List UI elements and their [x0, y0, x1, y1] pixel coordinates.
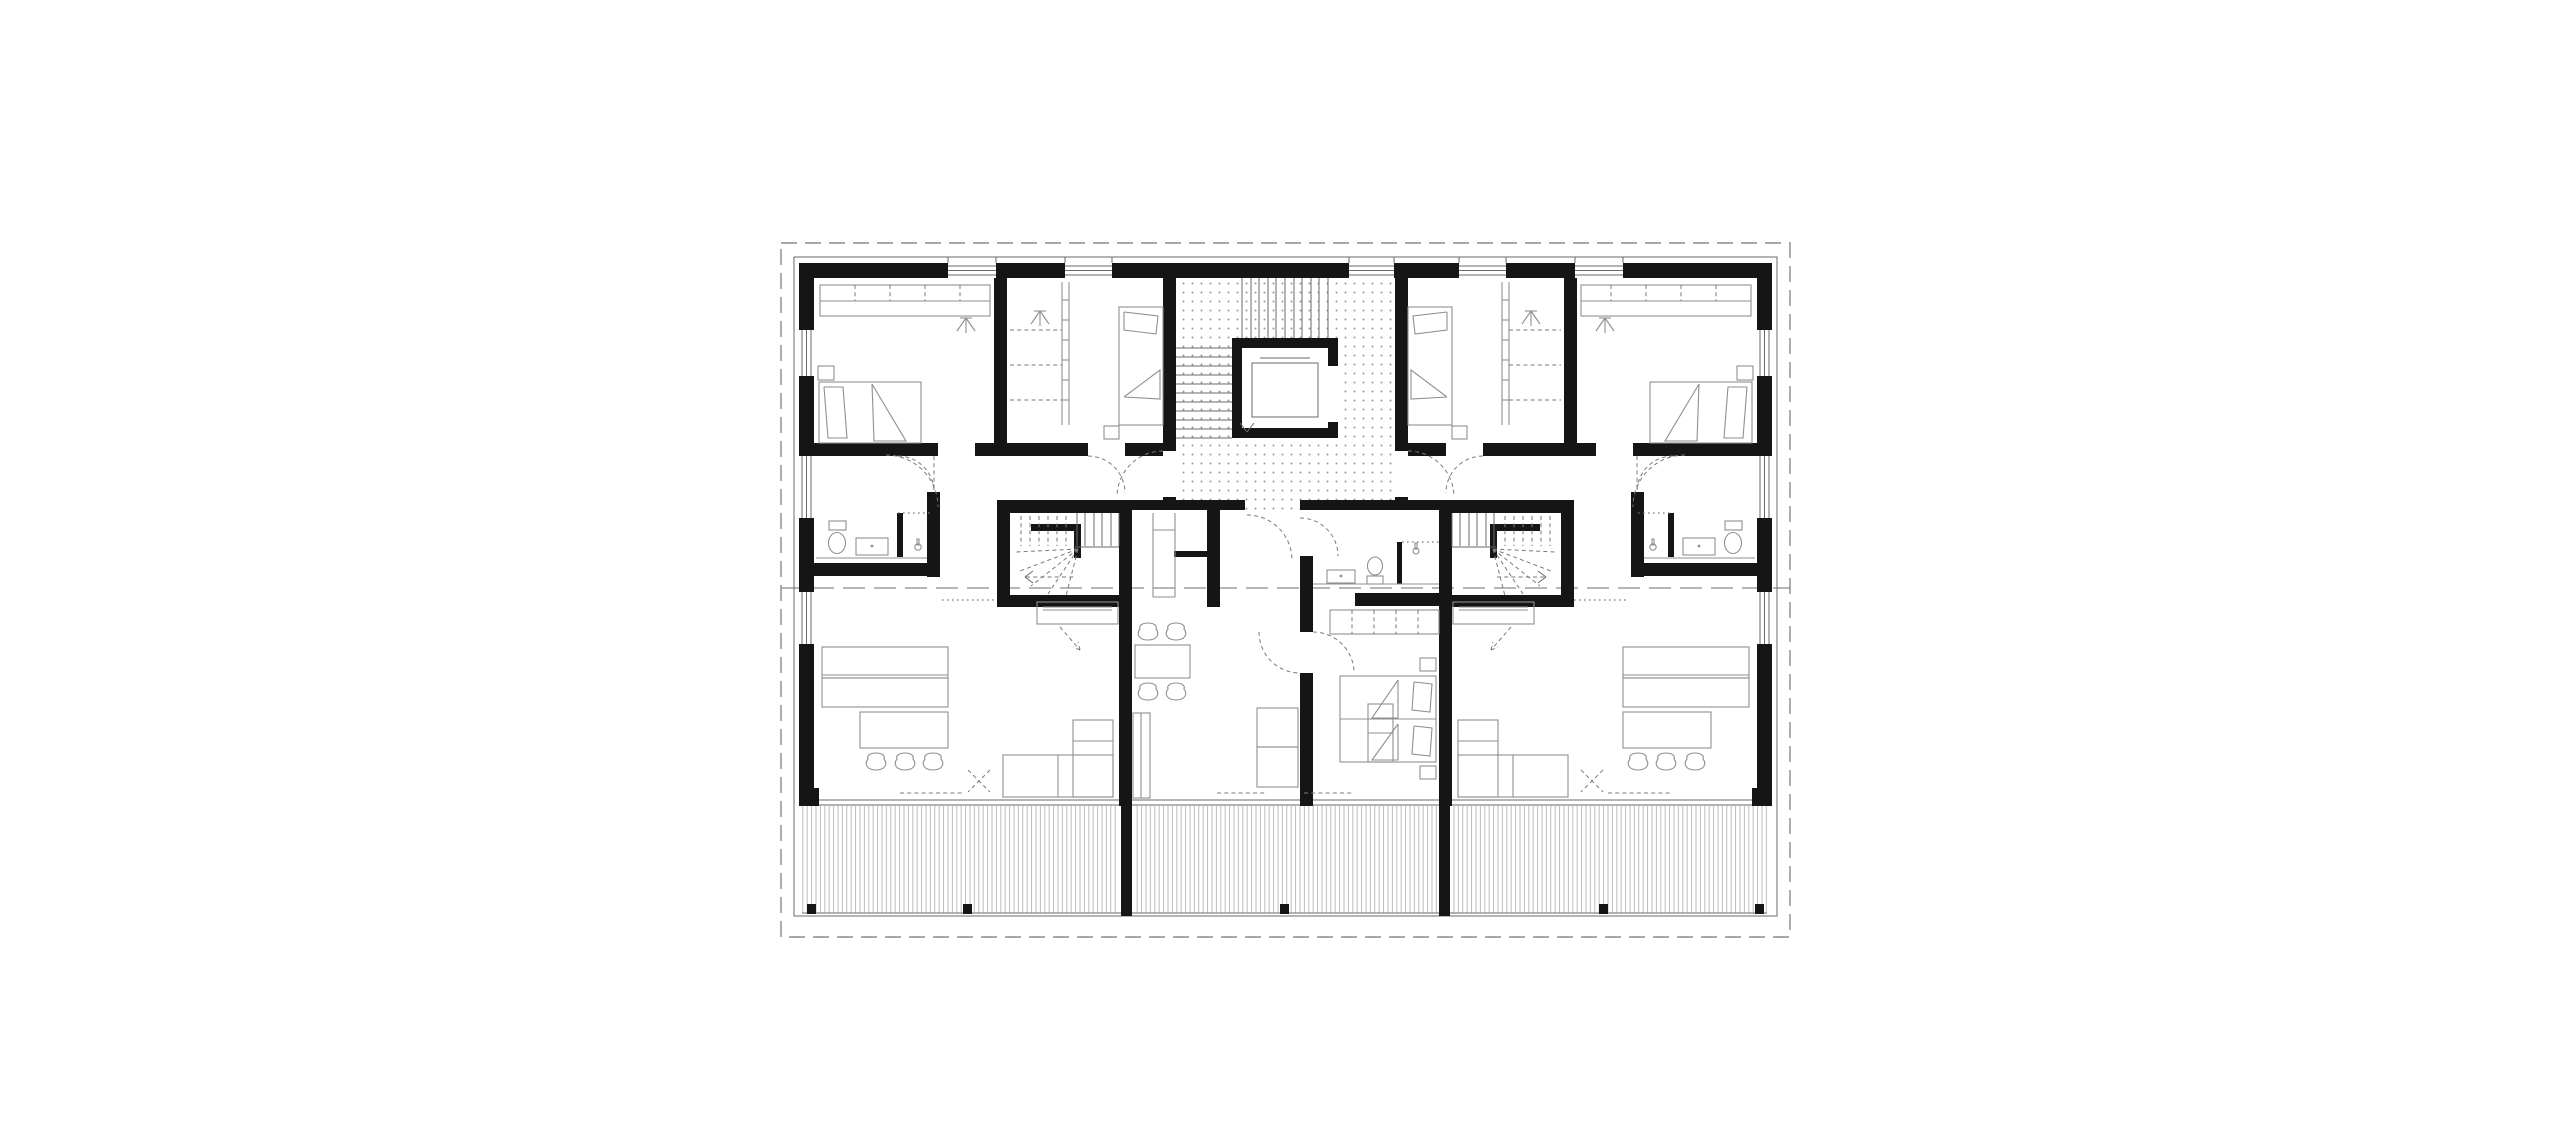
door-swings-p [1408, 451, 1454, 497]
exterior-walls-r [1506, 263, 1575, 278]
door-swings-p [1247, 515, 1292, 560]
door-swings-p [1446, 456, 1483, 493]
interior-walls-r [997, 500, 1010, 600]
chairs-chair [1138, 623, 1157, 640]
furniture-fan [1596, 318, 1614, 333]
furniture-fan [1031, 311, 1049, 326]
furniture-r [1420, 766, 1436, 779]
dashed-details-l [1493, 549, 1523, 594]
interior-walls-r [814, 443, 938, 456]
chairs [866, 623, 1704, 770]
exterior-walls-r [799, 376, 814, 456]
furniture-e [1725, 533, 1742, 554]
exterior-walls-r [1757, 263, 1772, 330]
exterior-walls-r [1394, 263, 1459, 278]
balcony-deck-hatch-r [1452, 806, 1767, 913]
furniture-r [818, 366, 834, 380]
interior-walls-r [1125, 443, 1163, 456]
interior-walls-r [1439, 500, 1452, 806]
furniture-fan [1522, 311, 1540, 326]
stair-treads-l [1025, 577, 1033, 583]
furniture-r [1104, 426, 1119, 439]
furniture-pl [824, 387, 847, 438]
furniture-pl [1412, 726, 1432, 756]
exterior-walls-r [1757, 644, 1772, 806]
stair-treads-l [1538, 571, 1546, 577]
chairs-chair [1685, 753, 1704, 770]
door-swings-p [898, 456, 934, 492]
dashed-details-l [1031, 549, 1078, 586]
furniture-r [1737, 366, 1753, 380]
exterior-walls-r [799, 644, 814, 806]
furniture-pl [1372, 724, 1398, 760]
interior-walls-r [1631, 563, 1757, 576]
interior-walls-r [1207, 510, 1220, 607]
interior-walls-r [997, 595, 1132, 607]
interior-walls-r [814, 563, 940, 576]
interior-walls-r [1119, 500, 1132, 806]
interior-walls-r [1163, 278, 1176, 451]
furniture-r [1367, 576, 1383, 584]
furniture-pl [1413, 312, 1447, 334]
interior-walls-r [1121, 788, 1132, 916]
dashed-details-l [1048, 549, 1078, 594]
interior-walls-r [1408, 443, 1446, 456]
furniture-e [829, 533, 846, 554]
furniture-pl [1665, 384, 1699, 441]
stair-treads-l [1025, 571, 1033, 577]
exterior-walls-r [799, 788, 819, 806]
chairs-chair [923, 753, 942, 770]
furniture-e [1368, 557, 1383, 575]
furniture-pl [1124, 312, 1158, 334]
furniture-pl [1411, 370, 1447, 399]
interior-walls-r [1397, 542, 1402, 584]
dashed-details-l [968, 770, 990, 792]
elevator-shaft-openings [1242, 348, 1338, 428]
dashed-details-l [1493, 549, 1505, 596]
dashed-details-l [1060, 627, 1080, 650]
interior-walls-r [997, 500, 1132, 513]
furniture-r [1408, 307, 1452, 425]
interior-walls-r [1561, 500, 1574, 600]
exterior-walls-r [799, 263, 814, 330]
furniture-pl [1724, 387, 1747, 438]
furniture-r [1420, 658, 1436, 671]
interior-walls-r [994, 278, 1007, 456]
chairs-chair [895, 753, 914, 770]
furniture-r [822, 678, 948, 707]
interior-walls-r [1300, 500, 1439, 510]
balcony-posts-r [963, 904, 972, 914]
door-swings-p [1637, 456, 1673, 492]
furniture-r [829, 521, 846, 530]
exterior-walls-r [996, 263, 1065, 278]
interior-walls-r [1668, 513, 1674, 557]
door-swings-p [1313, 632, 1354, 673]
floor-plan-canvas [0, 0, 2567, 1142]
dashed-details-l [1016, 549, 1078, 552]
furniture-r [1330, 610, 1439, 634]
furniture-r [1452, 426, 1467, 439]
furniture-d [1698, 545, 1701, 548]
balcony-deck-hatch [802, 806, 1767, 913]
dashed-details-l [1581, 770, 1603, 792]
door-swings-p [1300, 518, 1338, 556]
furniture-r [1623, 712, 1711, 748]
interior-walls-r [1174, 551, 1207, 557]
furniture-d [1340, 575, 1343, 578]
balcony-posts-r [807, 904, 816, 914]
furniture-r [1623, 678, 1749, 707]
interior-walls-r [897, 513, 903, 557]
interior-walls-r [1300, 556, 1313, 632]
interior-walls-r [1395, 278, 1408, 451]
furniture-r [1623, 647, 1749, 678]
chairs-chair [1138, 683, 1157, 700]
exterior-walls-r [1752, 788, 1772, 806]
exterior-walls-r [1623, 263, 1772, 278]
chairs-chair [1656, 753, 1675, 770]
balcony-deck-hatch-r [1134, 806, 1437, 913]
exterior-walls-r [799, 263, 948, 278]
chairs-chair [1166, 623, 1185, 640]
dotted-details [898, 513, 1673, 600]
furniture-r [1257, 708, 1298, 747]
balcony-posts-r [1755, 904, 1764, 914]
plan-layers [781, 243, 1790, 937]
dashed-details-l [1020, 549, 1078, 571]
floor-plan [0, 0, 2567, 1142]
exterior-walls-r [799, 518, 814, 592]
door-swings-p [1088, 456, 1125, 493]
furniture-pl [872, 384, 906, 441]
chairs-chair [1628, 753, 1647, 770]
interior-walls-r [1483, 443, 1596, 456]
furniture-fan [957, 318, 975, 333]
furniture-r [1257, 747, 1298, 787]
furniture-r [1458, 720, 1498, 797]
chairs-chair [866, 753, 885, 770]
chairs-chair [1166, 683, 1185, 700]
balcony-posts-r [1599, 904, 1608, 914]
elevator-shaft-openings-r [1326, 366, 1338, 422]
interior-walls-r [1439, 595, 1574, 607]
interior-walls-r [1119, 500, 1245, 510]
interior-walls-r [975, 443, 1088, 456]
exterior-walls-r [1757, 518, 1772, 592]
elevator-shaft-openings-r [1242, 348, 1328, 428]
exterior-walls-r [1112, 263, 1349, 278]
furniture-r [1135, 645, 1190, 678]
balcony-deck-hatch-r [802, 806, 1119, 913]
door-swings-p [1117, 451, 1163, 497]
dashed-details-l [1493, 549, 1555, 552]
furniture-r [1073, 720, 1113, 797]
interior-walls-r [1439, 500, 1574, 513]
door-swings-p [1259, 632, 1300, 673]
dashed-details-l [1491, 627, 1511, 650]
furniture-d [871, 545, 874, 548]
furniture-pl [1124, 370, 1160, 399]
dashed-details-l [1493, 549, 1551, 571]
furniture-r [1650, 382, 1752, 443]
interior-walls-r [1564, 278, 1577, 456]
interior-walls-r [1300, 673, 1313, 806]
stair-treads-l [1538, 577, 1546, 583]
furniture-r [822, 647, 948, 678]
interior-walls-r [1355, 593, 1439, 606]
exterior-walls-r [1757, 376, 1772, 456]
furniture-r [1725, 521, 1742, 530]
furniture-pl [1372, 680, 1398, 718]
furniture-pl [1412, 682, 1432, 712]
dashed-details-l [1066, 549, 1078, 596]
dashed-details-l [1493, 549, 1540, 586]
furniture-r [819, 382, 921, 443]
furniture-r [860, 712, 948, 748]
interior-walls-r [1439, 788, 1450, 916]
interior-walls-r [1633, 443, 1757, 456]
balcony-posts-r [1280, 904, 1289, 914]
furniture-r [1119, 307, 1163, 425]
